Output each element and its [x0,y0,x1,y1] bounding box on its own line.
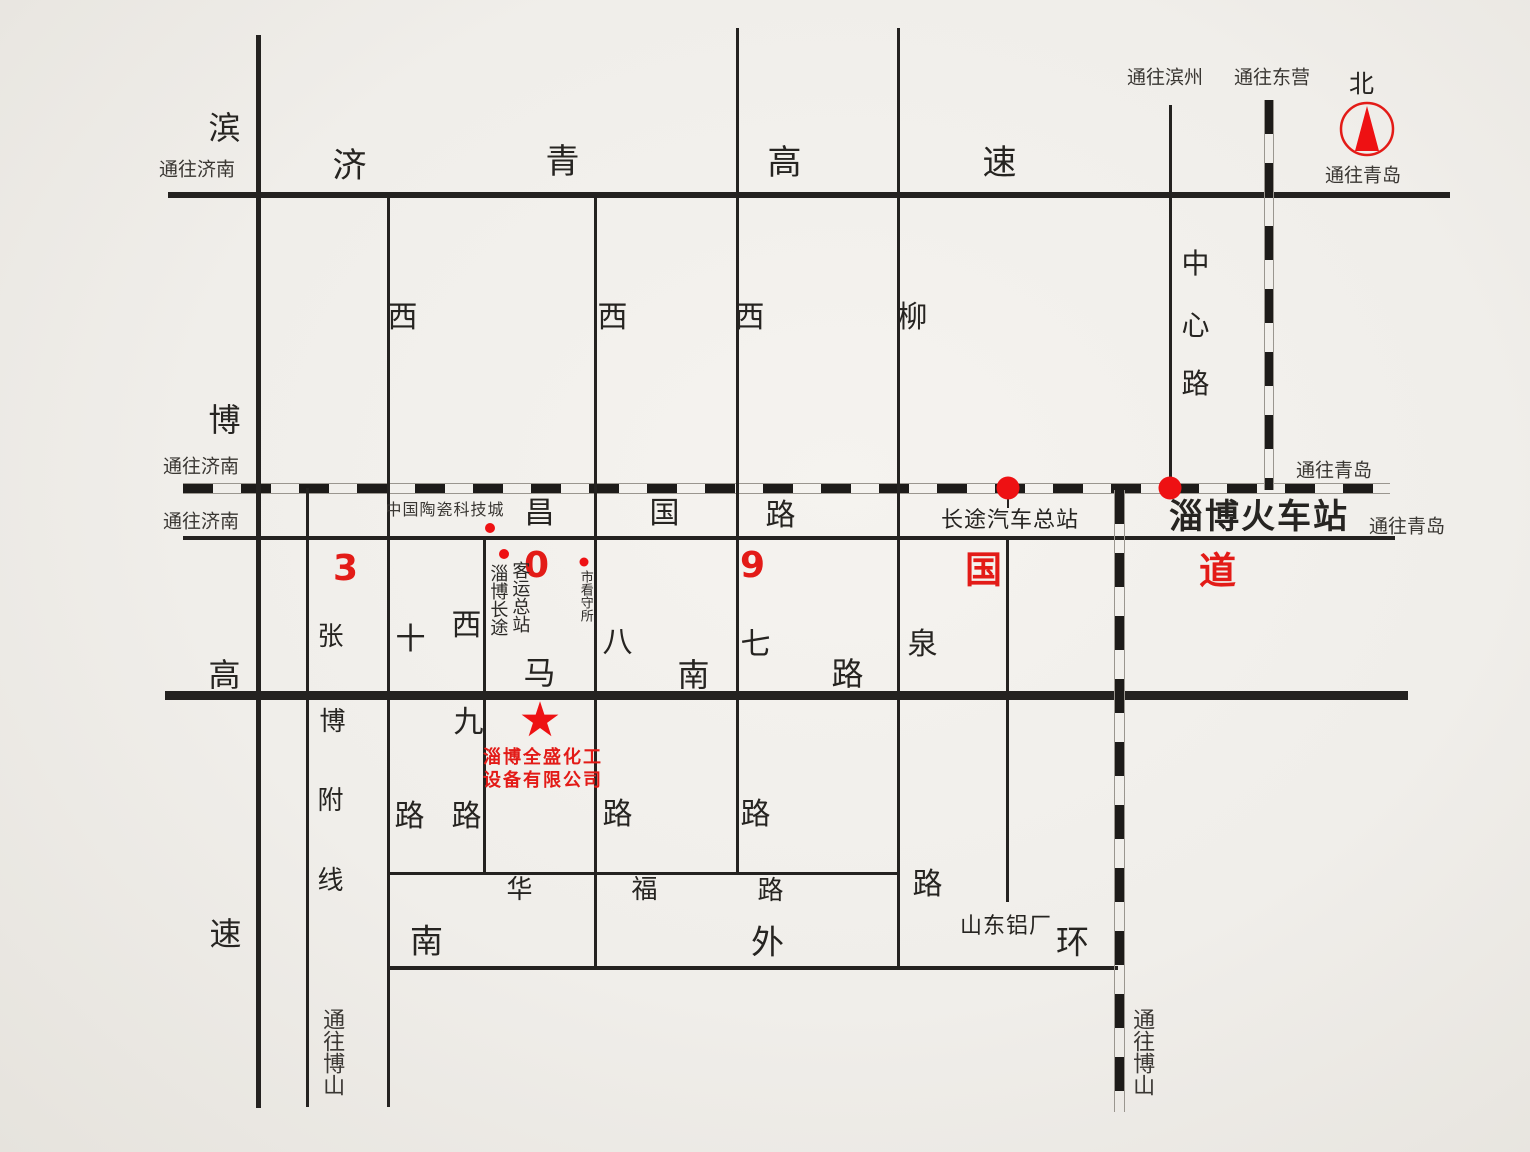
zhangbo-railway-line [1114,490,1125,1112]
company-star-marker: ★ [518,692,561,748]
g309-char-9: 9 [740,548,766,584]
xijiu-char-lu: 路 [452,802,483,832]
xiqi-char-xi: 西 [735,303,766,333]
dongying-railway-line [1264,100,1274,490]
g309-char-dao: 道 [1199,553,1237,590]
coach-terminal-label-col1: 淄博长途 [487,564,508,636]
changguo-char-chang: 昌 [525,499,556,529]
jiqing-char-su: 速 [983,146,1018,180]
g309-char-guo: 国 [965,552,1003,589]
jiqing-char-ji: 济 [333,149,368,183]
zhongxin-road-line [1169,105,1172,488]
to-dongying-label: 通往东营 [1234,69,1310,88]
liuquan-char-lu: 路 [913,870,944,900]
g309-char-3: 3 [333,551,359,587]
aluminum-plant-label: 山东铝厂 [960,916,1052,938]
to-qingdao-changguo-label: 通往青岛 [1369,518,1445,537]
changguo-char-lu: 路 [766,501,797,531]
manan-char-lu: 路 [831,658,864,690]
detention-house-dot [580,558,589,567]
xiqi-char-lu: 路 [741,800,772,830]
xishi-char-xi: 西 [388,303,419,333]
company-name-line2: 设备有限公司 [483,772,603,790]
zhangbo-char-xian: 线 [317,868,344,894]
xiba-char-lu: 路 [603,800,634,830]
huafu-char-lu: 路 [757,878,784,904]
binbo-expressway-line [256,35,261,1108]
xiba-char-xi: 西 [598,303,629,333]
to-qingdao-railway-label: 通往青岛 [1296,462,1372,481]
compass-icon [1336,99,1398,161]
zhangbo-branch-line [306,488,309,1107]
xijiu-char-jiu: 九 [454,708,485,738]
map-canvas: 济 青 高 速 滨 博 高 速 昌 国 路 3 0 9 国 道 马 南 路 华 … [0,0,1530,1152]
zhongxin-char-lu: 路 [1181,370,1210,398]
zhangbo-char-bo: 博 [319,709,346,735]
manan-road-line [165,691,1408,700]
manan-char-ma: 马 [523,657,556,689]
liuquan-char-quan: 泉 [908,630,939,660]
company-name-line1: 淄博全盛化工 [483,749,603,767]
north-label: 北 [1349,72,1375,97]
xishi-char-shi: 十 [396,625,427,655]
zhongxin-char-xin: 心 [1181,312,1210,340]
xiba-char-ba: 八 [603,628,634,658]
xiqi-char-qi: 七 [741,630,772,660]
coach-terminal-label-col2: 客运总站 [509,561,530,633]
ring-char-nan: 南 [410,925,444,958]
bus-terminal-dot [997,477,1020,500]
binbo-char-gao: 高 [208,659,241,691]
zhangbo-char-fu: 附 [317,788,344,814]
xishi-char-lu: 路 [395,802,426,832]
to-jinan-expressway-label: 通往济南 [159,161,235,180]
detention-house-label: 市看守所 [577,570,593,622]
ring-char-huan: 环 [1056,926,1090,959]
south-outer-ring-line [388,966,1118,970]
coach-terminal-dot [499,549,509,559]
jiqing-char-gao: 高 [768,146,803,180]
binbo-char-bin: 滨 [208,112,241,144]
ceramics-city-dot [485,523,495,533]
station-road-line [1006,538,1009,902]
zhongxin-char-zhong: 中 [1181,250,1210,278]
railway-station-label: 淄博火车站 [1169,500,1349,534]
ring-char-wai: 外 [751,926,785,959]
manan-char-nan: 南 [677,659,710,691]
to-boshan-west-label: 通往博山 [319,1008,343,1096]
bus-terminal-label: 长途汽车总站 [941,510,1079,532]
liuquan-road-line [897,28,900,968]
liuquan-char-liu: 柳 [898,303,929,333]
to-jinan-railway-label: 通往济南 [163,458,239,477]
binbo-char-su: 速 [209,918,242,950]
huafu-char-fu: 福 [631,877,658,903]
to-binzhou-label: 通往滨州 [1127,69,1203,88]
changguo-char-guo: 国 [650,499,681,529]
jiaoji-railway-line [183,483,1390,494]
to-jinan-changguo-label: 通往济南 [163,513,239,532]
to-qingdao-compass-label: 通往青岛 [1325,167,1401,186]
binbo-char-bo: 博 [208,404,241,436]
jiqing-expressway-line [168,192,1450,198]
zhangbo-char-zhang: 张 [317,624,344,650]
jiqing-char-qing: 青 [546,145,581,179]
xijiu-char-xi: 西 [452,611,483,641]
ceramics-city-label: 中国陶瓷科技城 [385,502,504,518]
huafu-char-hua: 华 [506,877,533,903]
xiqi-road-line [736,28,739,874]
to-boshan-east-label: 通往博山 [1129,1008,1153,1096]
